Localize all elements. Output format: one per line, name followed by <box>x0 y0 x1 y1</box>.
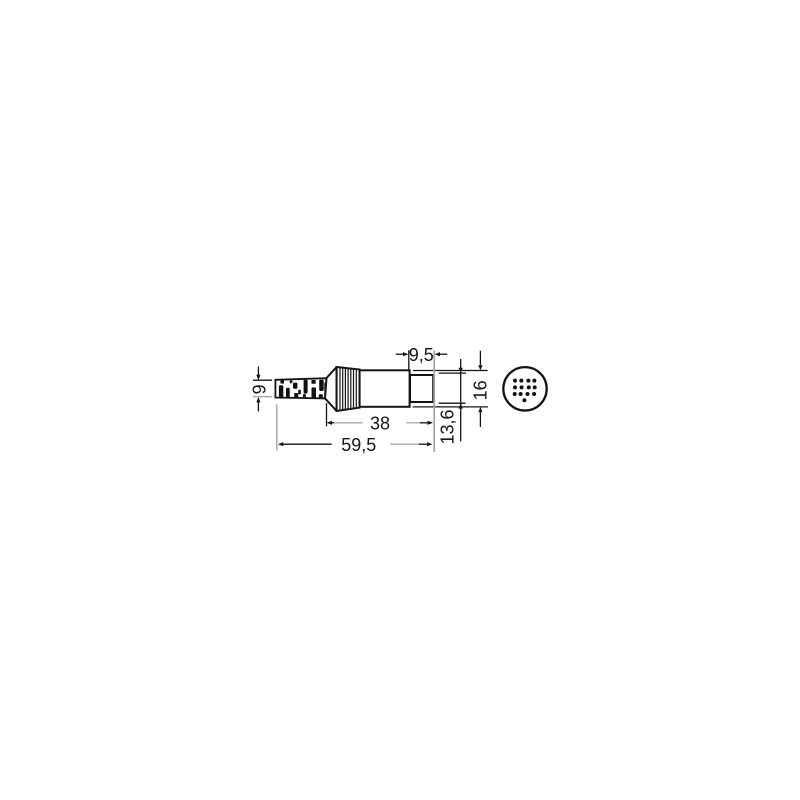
svg-text:9,5: 9,5 <box>409 345 434 365</box>
svg-text:13,6: 13,6 <box>437 409 457 444</box>
svg-text:16: 16 <box>470 380 490 400</box>
svg-text:38: 38 <box>370 414 390 434</box>
svg-text:9: 9 <box>249 384 269 394</box>
svg-text:59,5: 59,5 <box>341 435 376 455</box>
